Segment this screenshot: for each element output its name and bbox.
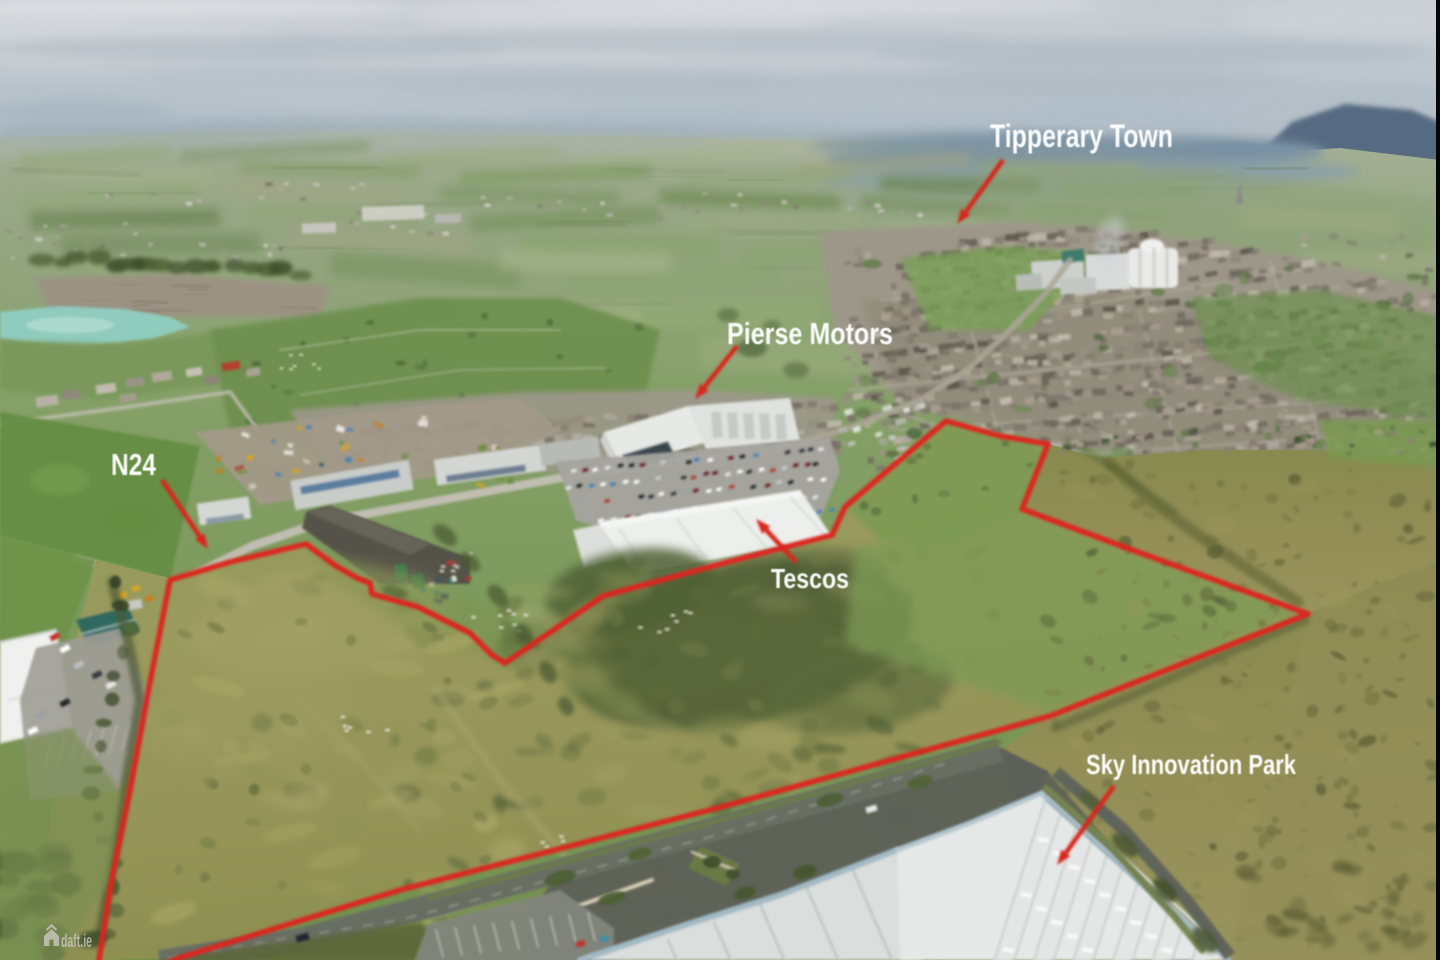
svg-text:Tescos: Tescos bbox=[771, 563, 849, 594]
svg-text:Tipperary Town: Tipperary Town bbox=[990, 118, 1173, 154]
svg-text:Pierse Motors: Pierse Motors bbox=[727, 316, 893, 351]
svg-text:Sky Innovation Park: Sky Innovation Park bbox=[1086, 749, 1296, 780]
svg-text:N24: N24 bbox=[111, 447, 157, 482]
svg-text:daft.ie: daft.ie bbox=[61, 931, 92, 951]
